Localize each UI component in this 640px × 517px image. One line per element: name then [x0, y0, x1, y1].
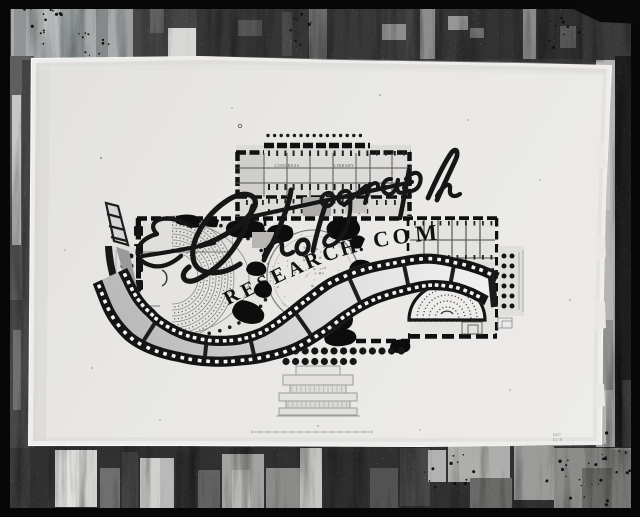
svg-text:LIBRARY: LIBRARY	[334, 163, 355, 168]
svg-text:CONGRESS: CONGRESS	[275, 163, 300, 168]
svg-text:M: M	[414, 220, 438, 247]
svg-text:O: O	[391, 222, 411, 249]
svg-text:LC-B: LC-B	[553, 437, 562, 442]
